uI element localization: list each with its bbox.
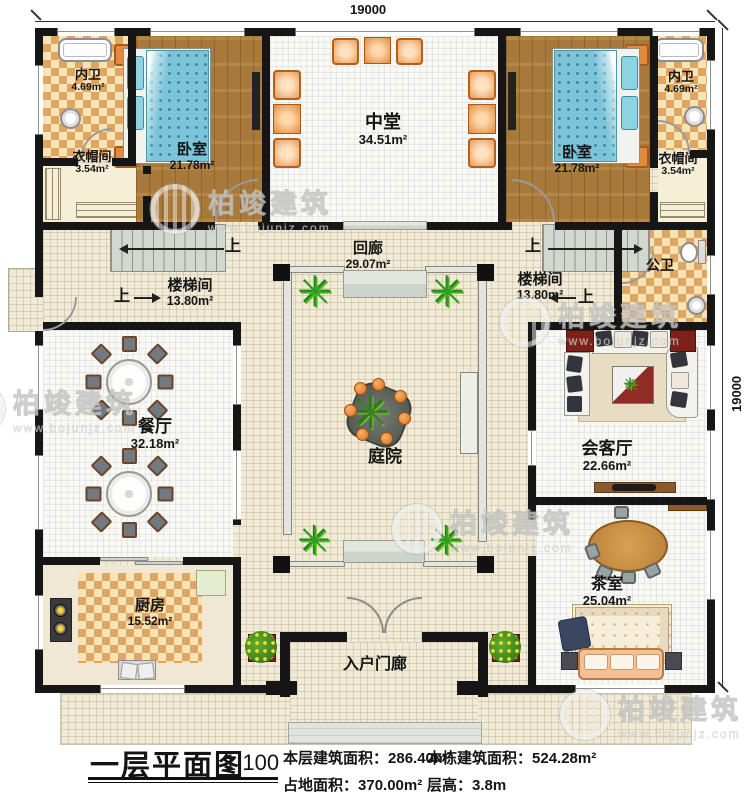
room-area: 3.54m² xyxy=(72,164,111,176)
wall xyxy=(650,158,658,168)
window xyxy=(707,530,715,600)
sofa-cushion xyxy=(566,375,583,393)
label-huilang: 回廊 29.07m² xyxy=(346,241,391,271)
sofa-cushion xyxy=(610,654,634,670)
room-name: 卧室 xyxy=(177,141,207,158)
sofa-cushion xyxy=(671,372,689,389)
stair-up-label: 上 xyxy=(578,289,594,307)
planter-fruit xyxy=(398,412,411,425)
wall-dining-right xyxy=(233,520,241,525)
planter-fruit xyxy=(372,378,385,391)
room-name: 卧室 xyxy=(562,144,592,161)
dimension-tick xyxy=(706,9,717,20)
dimension-right-line xyxy=(722,28,723,688)
label-neiwei-right: 内卫 4.69m² xyxy=(664,70,697,96)
column xyxy=(273,556,290,573)
window xyxy=(707,60,715,130)
column xyxy=(273,264,290,281)
sink xyxy=(687,296,706,315)
wall xyxy=(262,222,343,230)
wall-dining-right xyxy=(233,330,241,345)
room-name: 会客厅 xyxy=(582,439,633,458)
room-area: 13.80m² xyxy=(517,289,564,303)
title-underline xyxy=(88,782,278,783)
label-neiwei-left: 内卫 4.69m² xyxy=(71,68,104,94)
wardrobe-hatch xyxy=(660,202,705,218)
label-rumenlan: 入户门廊 xyxy=(343,656,407,674)
sofa-cushion xyxy=(636,654,660,670)
wall-reception-left xyxy=(528,330,536,430)
hall-chair xyxy=(468,138,496,168)
room-name: 餐厅 xyxy=(138,417,172,436)
courtyard-step-north xyxy=(343,270,427,298)
floor-plan: 19000 19000 ✳ ✳ ✳ ✳ ✳ xyxy=(0,0,750,805)
title-underline xyxy=(88,777,278,780)
label-woshi-right: 卧室 21.78m² xyxy=(555,145,600,175)
planter-fruit xyxy=(354,382,367,395)
dining-chair xyxy=(158,487,174,502)
stat-label: 本栋建筑面积： xyxy=(427,750,532,767)
bathtub xyxy=(654,38,704,62)
sofa-cushion xyxy=(566,355,583,373)
sink xyxy=(60,108,81,129)
stat-value: 3.8m xyxy=(472,777,506,794)
porch-steps xyxy=(288,722,482,744)
room-name: 中堂 xyxy=(365,112,401,132)
wall-zhongtang-right xyxy=(498,36,506,230)
wall xyxy=(143,166,151,174)
wall-dining-right xyxy=(233,405,241,450)
dining-chair xyxy=(158,375,174,390)
stat-value: 524.28m² xyxy=(532,750,596,767)
fridge xyxy=(196,570,226,596)
room-area: 25.04m² xyxy=(583,594,631,608)
dining-table xyxy=(106,359,152,405)
wall-tea-top xyxy=(528,497,715,505)
wall-kitchen-top xyxy=(43,557,100,565)
porch-floor xyxy=(290,642,478,722)
wall xyxy=(650,36,658,150)
wall-gongwei-left xyxy=(614,222,622,330)
planter-fruit xyxy=(380,432,393,445)
label-yimaojian-right: 衣帽间 3.54m² xyxy=(658,152,697,178)
dining-chair xyxy=(86,375,102,390)
wall-porch-stub xyxy=(457,681,488,695)
dining-chair xyxy=(122,522,137,538)
room-area: 34.51m² xyxy=(359,133,407,147)
hall-table xyxy=(273,104,301,134)
wall-reception-top xyxy=(528,322,715,330)
drawing-scale: 1:100 xyxy=(224,750,279,776)
wall xyxy=(128,36,136,166)
stove-burner xyxy=(54,604,67,617)
window xyxy=(295,28,475,36)
window xyxy=(57,28,115,36)
side-table xyxy=(665,652,682,670)
window xyxy=(233,345,241,405)
dimension-tick xyxy=(717,19,728,30)
window xyxy=(35,455,43,530)
sofa-cushion xyxy=(595,330,612,347)
sofa-cushion xyxy=(567,396,582,412)
potted-plant-foliage xyxy=(489,631,521,663)
stove-burner xyxy=(54,622,67,635)
stat-total-area: 本栋建筑面积：524.28m² xyxy=(427,747,596,768)
palm-plant: ✳ xyxy=(430,272,465,314)
window xyxy=(575,685,665,693)
tv-panel xyxy=(508,72,516,130)
hall-chair xyxy=(332,38,359,65)
stat-label: 层高： xyxy=(427,777,472,794)
label-louti-left: 楼梯间 13.80m² xyxy=(167,278,214,308)
toilet xyxy=(680,242,698,263)
label-tingyuan: 庭院 xyxy=(368,448,402,467)
armchair xyxy=(557,616,591,653)
planter-fruit xyxy=(394,390,407,403)
sofa-cushion xyxy=(670,391,688,408)
window xyxy=(707,430,715,500)
dimension-top-label: 19000 xyxy=(350,2,386,17)
wall xyxy=(112,158,136,166)
sofa-cushion xyxy=(670,351,688,369)
dimension-tick xyxy=(717,681,728,692)
sliding-door xyxy=(135,561,183,565)
stair-up-label: 上 xyxy=(114,288,130,306)
stair-arrowhead xyxy=(119,244,128,254)
label-louti-right: 楼梯间 13.80m² xyxy=(517,272,564,302)
dining-table xyxy=(106,471,152,517)
room-name: 厨房 xyxy=(135,597,165,614)
room-area: 13.80m² xyxy=(167,295,214,309)
window xyxy=(528,430,536,466)
wall-dining-right xyxy=(233,560,241,685)
accent-mat xyxy=(670,330,696,352)
hall-table xyxy=(468,104,496,134)
label-yimaojian-left: 衣帽间 3.54m² xyxy=(72,150,111,176)
tv xyxy=(612,484,656,491)
window xyxy=(520,28,618,36)
dimension-tick xyxy=(30,9,41,20)
label-huiketing: 会客厅 22.66m² xyxy=(582,440,633,473)
label-zhongtang: 中堂 34.51m² xyxy=(359,113,407,147)
label-canting: 餐厅 32.18m² xyxy=(131,418,179,451)
room-name: 内卫 xyxy=(75,67,101,82)
room-area: 4.69m² xyxy=(664,84,697,96)
hall-table xyxy=(364,37,391,64)
tea-chair xyxy=(614,506,629,519)
wall xyxy=(506,222,512,230)
palm-plant: ✳ xyxy=(430,522,464,562)
hall-chair xyxy=(273,138,301,168)
coffee-plant: ✳ xyxy=(624,378,637,394)
window xyxy=(707,255,715,295)
sofa-cushion xyxy=(614,331,632,348)
pillow xyxy=(621,96,638,130)
column xyxy=(477,556,494,573)
side-table xyxy=(561,652,578,670)
window xyxy=(35,65,43,135)
room-name: 内卫 xyxy=(668,69,694,84)
accent-mat xyxy=(566,330,594,352)
dimension-right-label: 19000 xyxy=(729,376,744,412)
dimension-top-line xyxy=(35,21,715,22)
room-area: 3.54m² xyxy=(658,166,697,178)
room-area: 4.69m² xyxy=(71,82,104,94)
sofa-cushion xyxy=(631,330,648,346)
stat-label: 本层建筑面积： xyxy=(283,750,388,767)
column xyxy=(477,264,494,281)
wall-kitchen-top xyxy=(183,557,241,565)
tv-panel xyxy=(252,72,260,130)
wall xyxy=(143,196,151,222)
wardrobe-hatch xyxy=(76,202,138,218)
stat-story-height: 层高：3.8m xyxy=(427,774,506,795)
wall-reception-left xyxy=(528,556,536,685)
sink-basin xyxy=(137,662,155,680)
potted-plant-foliage xyxy=(245,631,277,663)
planter-fruit xyxy=(356,428,369,441)
window xyxy=(233,450,241,520)
room-name: 庭院 xyxy=(368,447,402,466)
palm-plant: ✳ xyxy=(298,522,332,562)
hall-chair xyxy=(396,38,423,65)
room-area: 29.07m² xyxy=(346,258,391,271)
window xyxy=(707,345,715,410)
label-gongwei: 公卫 xyxy=(646,258,674,273)
stair-arrow xyxy=(134,297,152,299)
zhongtang-threshold xyxy=(343,221,427,230)
room-name: 茶室 xyxy=(591,576,623,593)
wall-reception-left xyxy=(528,466,536,520)
stair-up-label: 上 xyxy=(525,238,541,256)
watermark-logo-icon xyxy=(0,384,5,434)
stat-footprint: 占地面积：370.00m² xyxy=(283,774,422,795)
dining-chair xyxy=(122,336,137,352)
bathtub xyxy=(58,38,112,62)
room-name: 楼梯间 xyxy=(517,271,562,288)
hall-chair xyxy=(273,70,301,100)
wall-porch xyxy=(280,632,347,642)
room-name: 回廊 xyxy=(353,240,383,257)
room-name: 衣帽间 xyxy=(72,149,111,164)
sofa-cushion xyxy=(650,331,668,348)
window xyxy=(150,28,245,36)
room-area: 22.66m² xyxy=(582,459,633,473)
wall xyxy=(650,150,658,158)
wardrobe-hatch xyxy=(45,168,61,220)
sofa-cushion xyxy=(584,654,608,670)
stair-arrow xyxy=(128,248,224,250)
room-name: 公卫 xyxy=(646,257,674,273)
stat-value: 370.00m² xyxy=(358,777,422,794)
stair-up-label: 上 xyxy=(225,238,241,256)
room-area: 32.18m² xyxy=(131,437,179,451)
stair-arrowhead xyxy=(152,293,161,303)
wall xyxy=(555,222,715,230)
window xyxy=(35,595,43,650)
courtyard-step-south xyxy=(343,540,425,563)
pillow xyxy=(621,56,638,90)
room-name: 楼梯间 xyxy=(167,277,212,294)
courtyard-bench xyxy=(460,372,478,454)
courtyard-wall-right xyxy=(478,272,487,542)
sink xyxy=(684,106,705,127)
planter-fruit xyxy=(344,404,357,417)
label-chashi: 茶室 25.04m² xyxy=(583,576,631,608)
room-area: 15.52m² xyxy=(128,615,173,628)
palm-plant: ✳ xyxy=(298,272,333,314)
room-name: 入户门廊 xyxy=(343,656,407,673)
room-area: 21.78m² xyxy=(170,159,215,172)
label-woshi-left: 卧室 21.78m² xyxy=(170,142,215,172)
wall xyxy=(650,192,658,222)
wall-dining-top xyxy=(43,322,241,330)
window xyxy=(652,28,700,36)
dining-chair xyxy=(86,487,102,502)
room-area: 21.78m² xyxy=(555,162,600,175)
room-name: 衣帽间 xyxy=(658,151,697,166)
wall xyxy=(35,222,215,230)
label-chufang: 厨房 15.52m² xyxy=(128,598,173,628)
window xyxy=(35,345,43,410)
courtyard-wall-left xyxy=(283,272,292,535)
wall-porch-stub xyxy=(266,681,297,695)
toilet-tank xyxy=(698,240,706,264)
wall xyxy=(427,222,506,230)
hall-chair xyxy=(468,70,496,100)
wall-zhongtang-left xyxy=(262,36,270,230)
window xyxy=(100,685,185,693)
sink-basin xyxy=(120,662,138,680)
stat-label: 占地面积： xyxy=(283,777,358,794)
